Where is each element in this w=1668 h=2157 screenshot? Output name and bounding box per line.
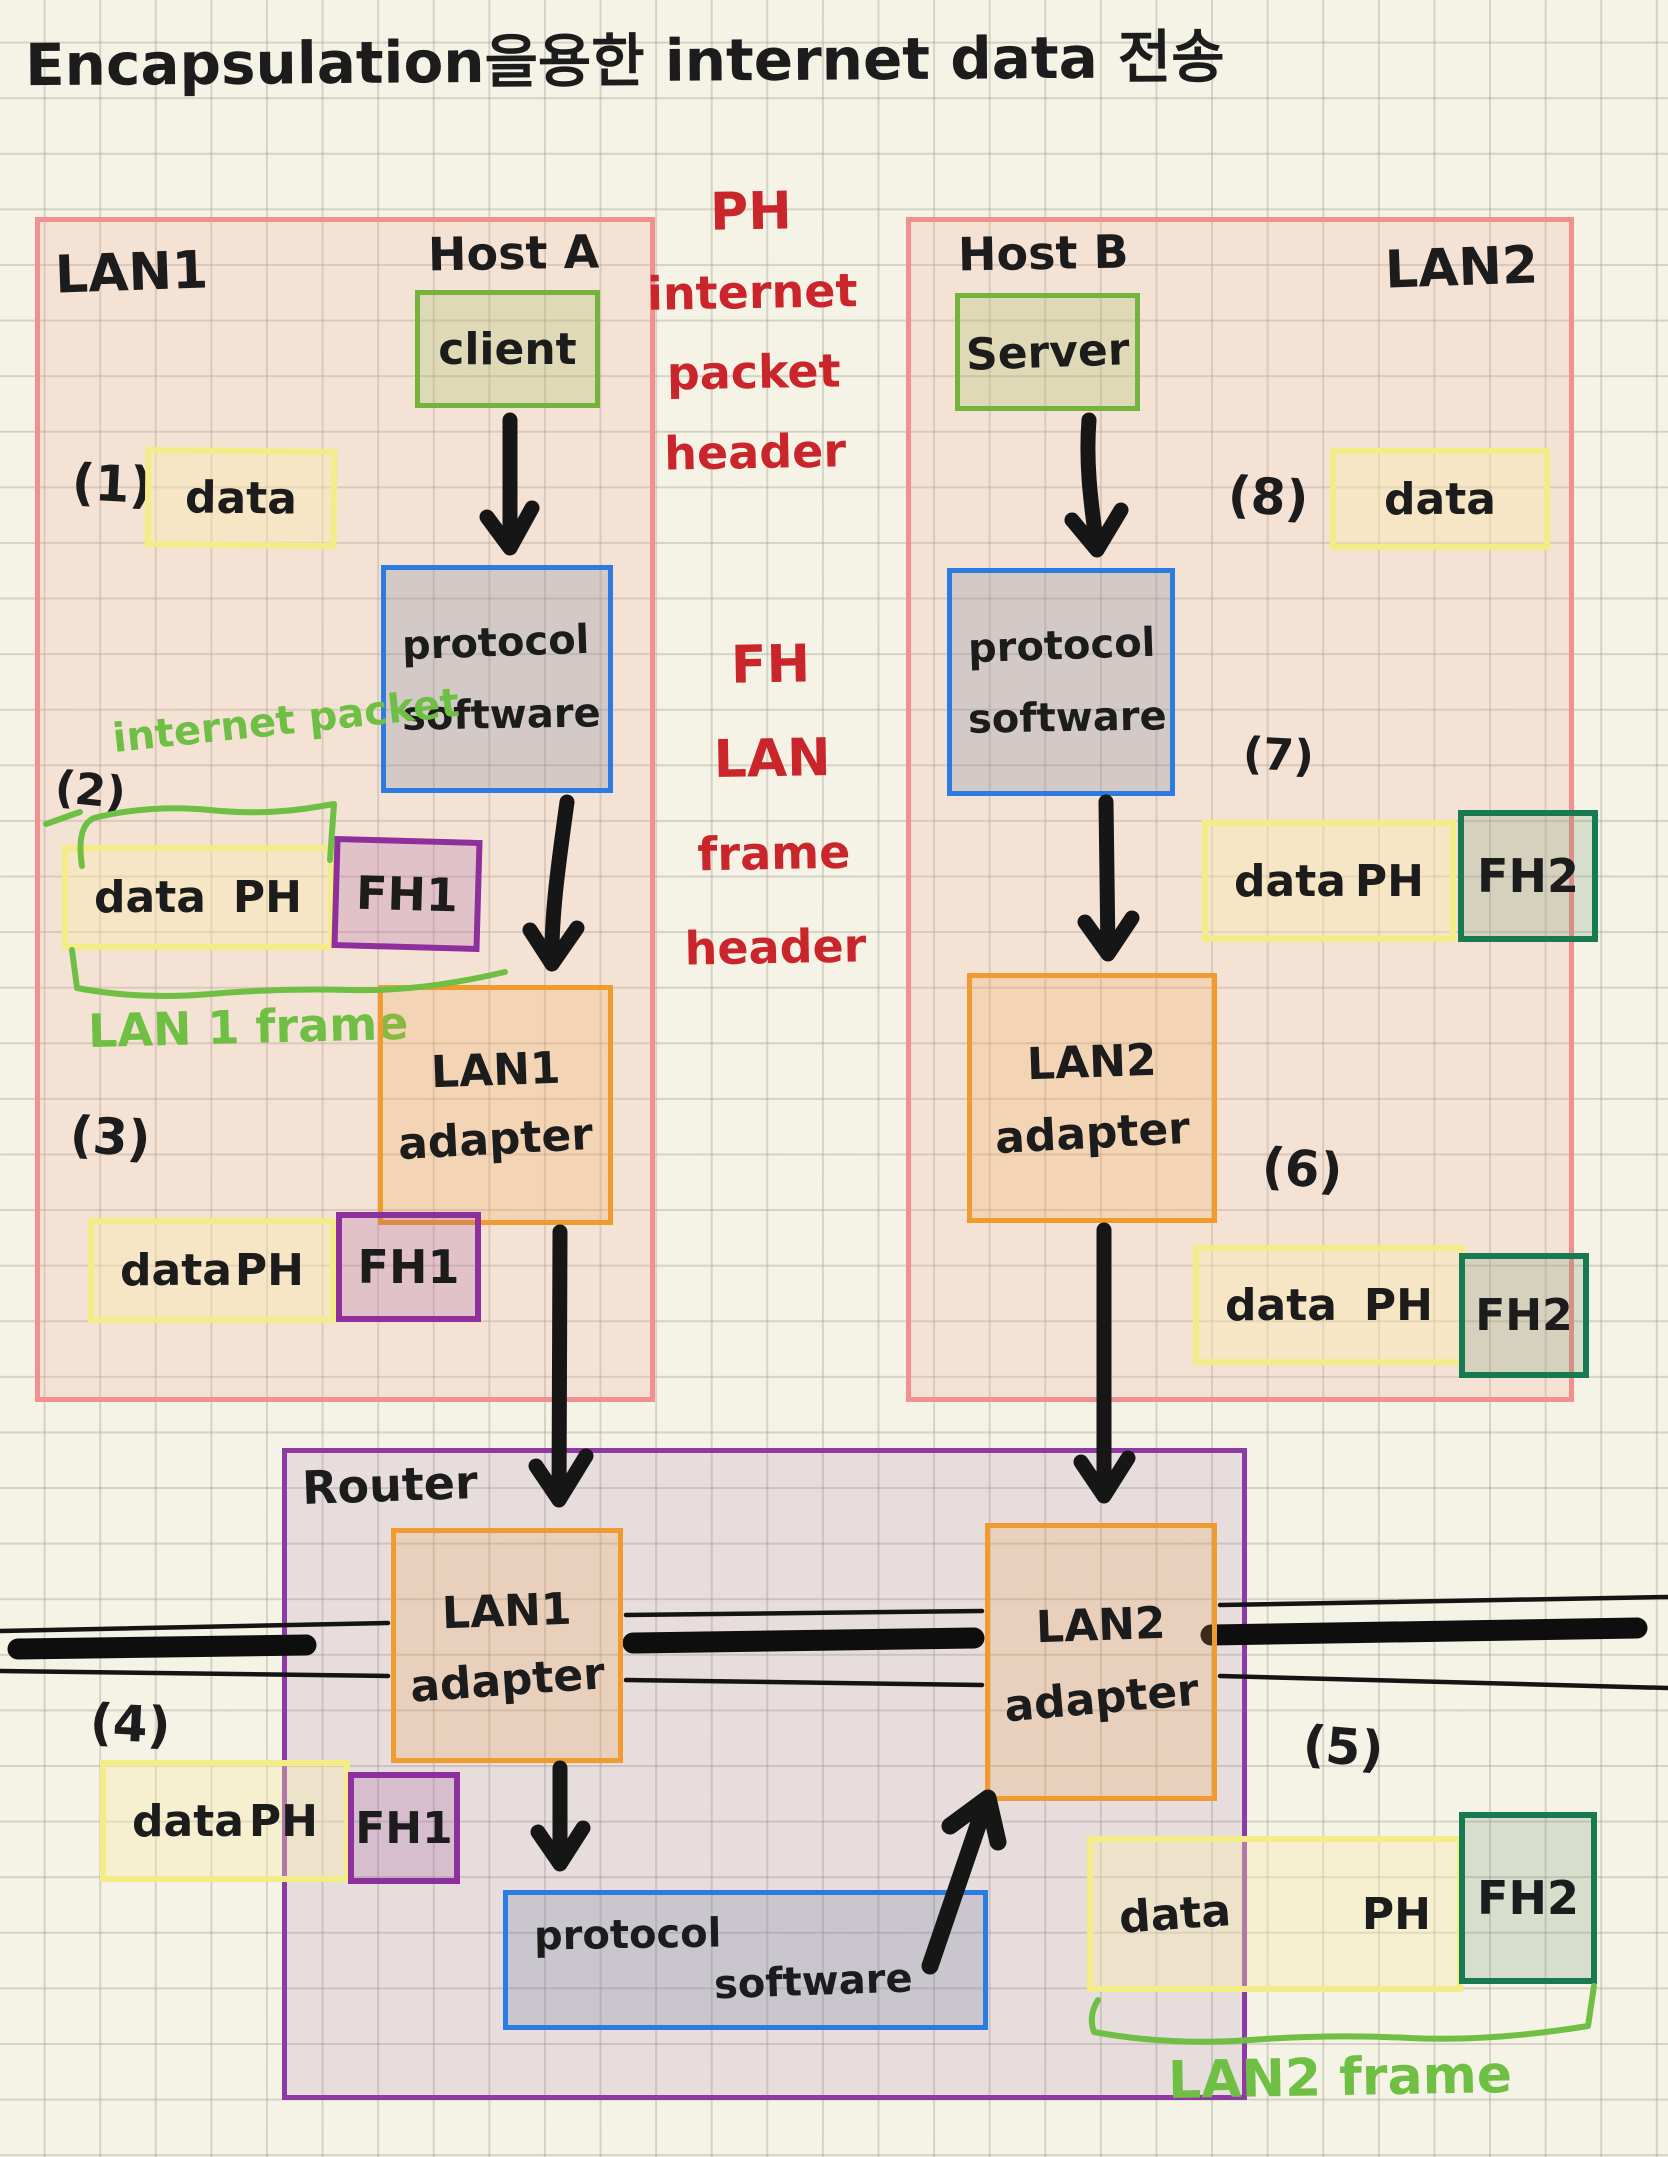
arrow-client-to-protocol	[487, 420, 532, 548]
internet-packet-bracket	[46, 804, 334, 866]
lan2-frame-bracket	[1092, 1986, 1594, 2042]
lan1-frame-bracket	[72, 950, 505, 996]
arrow-protocol-to-lan2-adapter	[1085, 802, 1132, 954]
arrow-lan1-adapter-to-router	[536, 1232, 586, 1500]
arrows-layer	[0, 0, 1668, 2157]
arrow-server-to-protocol	[1072, 420, 1121, 550]
diagram-canvas: Encapsulation을용한 internet data 전송 LAN1 H…	[0, 0, 1668, 2157]
arrow-lan2-adapter-to-router	[1081, 1230, 1128, 1496]
arrow-protocol-to-router-lan2-adapter	[930, 1798, 998, 1966]
arrow-router-adapter-to-protocol	[538, 1768, 583, 1864]
arrow-protocol-to-lan1-adapter	[530, 802, 577, 964]
